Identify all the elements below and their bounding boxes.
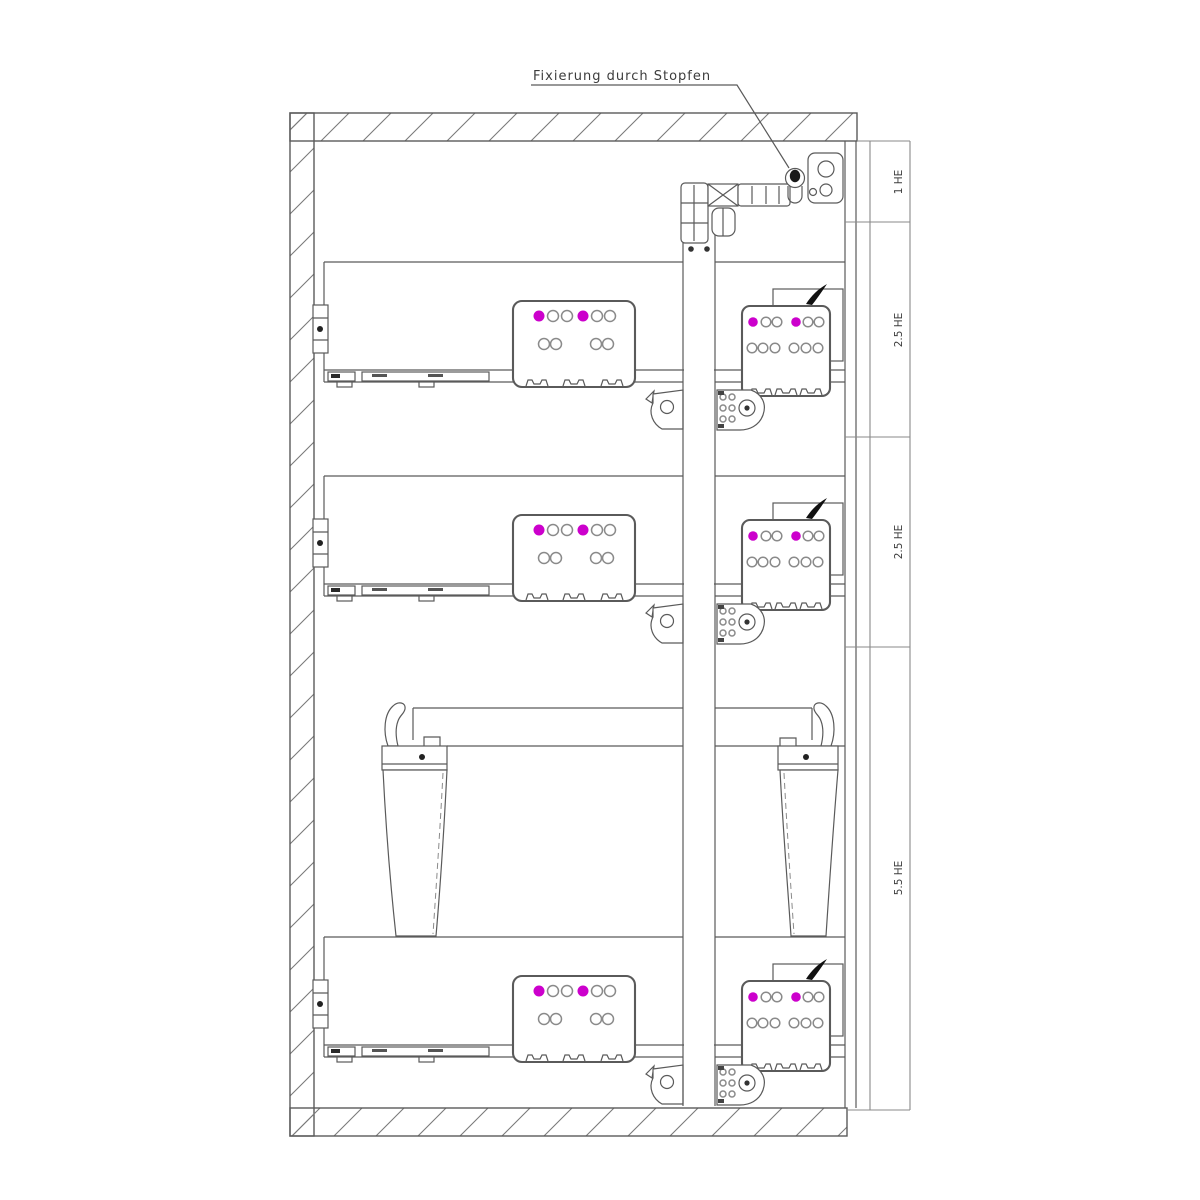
- cable-stand-left: [382, 703, 447, 936]
- clamp-hook-icon: [814, 703, 834, 746]
- annotation-label: Fixierung durch Stopfen: [533, 69, 711, 84]
- corner-bracket-assembly: [681, 153, 843, 243]
- clamp-hook-icon: [385, 703, 405, 746]
- cable-stand-right: [778, 703, 838, 936]
- cable-duct-column: [683, 226, 715, 1106]
- right-wall: [845, 141, 856, 1108]
- dimension-label-25he-a: 2.5 HE: [893, 313, 905, 348]
- dimension-label-1he: 1 HE: [893, 170, 905, 195]
- left-wall: [290, 113, 314, 1136]
- dimension-column: 1 HE 2.5 HE 2.5 HE 5.5 HE: [845, 141, 910, 1110]
- top-wall: [290, 113, 857, 141]
- hinge-detail: [808, 153, 843, 203]
- technical-drawing: 1 HE 2.5 HE 2.5 HE 5.5 HE: [0, 0, 1200, 1200]
- row-1: [313, 262, 845, 430]
- row-3: [313, 937, 845, 1105]
- dimension-label-25he-b: 2.5 HE: [893, 525, 905, 560]
- bottom-wall: [290, 1108, 847, 1136]
- drawing-canvas: 1 HE 2.5 HE 2.5 HE 5.5 HE: [0, 0, 1200, 1200]
- dimension-label-55he: 5.5 HE: [893, 861, 905, 896]
- row-2: [313, 476, 845, 644]
